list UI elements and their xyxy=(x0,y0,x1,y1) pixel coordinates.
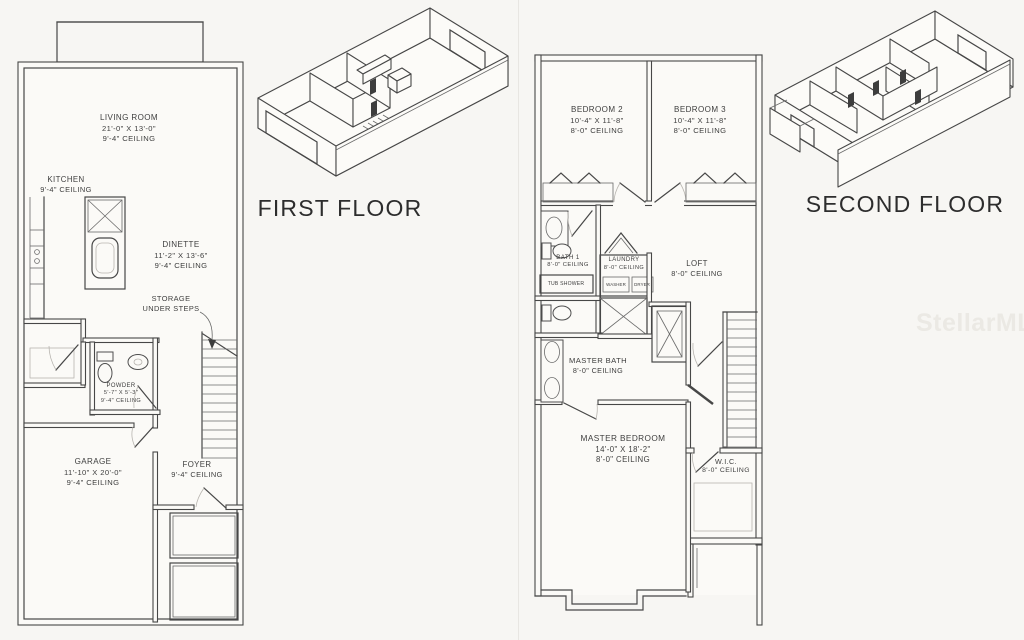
washer-label: WASHER xyxy=(606,282,626,288)
bedroom3-label: BEDROOM 3 10'-4" X 11'-8" 8'-0" CEILING xyxy=(673,105,726,136)
powder-label: POWDER 5'-7" X 5'-3" 9'-4" CEILING xyxy=(101,382,141,405)
floor-plan-sheet: FIRST FLOOR SECOND FLOOR LIVING ROOM 21'… xyxy=(0,0,1024,640)
first-floor-title: FIRST FLOOR xyxy=(258,195,423,222)
garage-label: GARAGE 11'-10" X 20'-0" 9'-4" CEILING xyxy=(64,457,122,488)
storage-label: STORAGE UNDER STEPS xyxy=(143,294,200,314)
bath1-label: BATH 1 8'-0" CEILING xyxy=(547,254,589,270)
double-vanity xyxy=(541,340,563,402)
living-room-label: LIVING ROOM 21'-0" X 13'-0" 9'-4" CEILIN… xyxy=(100,113,158,144)
plan-linework xyxy=(0,0,1024,640)
tub-shower-label: TUB SHOWER xyxy=(548,281,585,288)
second-floor-plan xyxy=(535,55,762,625)
dinette-label: DINETTE 11'-2" X 13'-6" 9'-4" CEILING xyxy=(154,240,207,271)
patio-outline xyxy=(57,22,203,62)
exterior-walls xyxy=(18,62,243,625)
loft-label: LOFT 8'-0" CEILING xyxy=(671,259,723,279)
master-bedroom-label: MASTER BEDROOM 14'-0" X 18'-2" 8'-0" CEI… xyxy=(581,434,666,465)
foyer-label: FOYER 9'-4" CEILING xyxy=(171,460,223,480)
powder-toilet-icon xyxy=(97,352,113,383)
powder-sink-icon xyxy=(128,355,148,370)
second-floor-3d-view xyxy=(770,11,1013,187)
first-floor-3d-view xyxy=(258,8,508,176)
second-floor-title: SECOND FLOOR xyxy=(806,191,1004,218)
bedroom2-label: BEDROOM 2 10'-4" X 11'-8" 8'-0" CEILING xyxy=(570,105,623,136)
stellar-mls-watermark: StellarMLS xyxy=(916,309,1024,338)
kitchen-label: KITCHEN 9'-4" CEILING xyxy=(40,175,92,195)
dryer-label: DRYER xyxy=(634,282,650,288)
master-bath-label: MASTER BATH 8'-0" CEILING xyxy=(569,356,627,376)
wic-label: W.I.C. 8'-0" CEILING xyxy=(702,457,750,475)
laundry-label: LAUNDRY 8'-0" CEILING xyxy=(604,257,644,272)
